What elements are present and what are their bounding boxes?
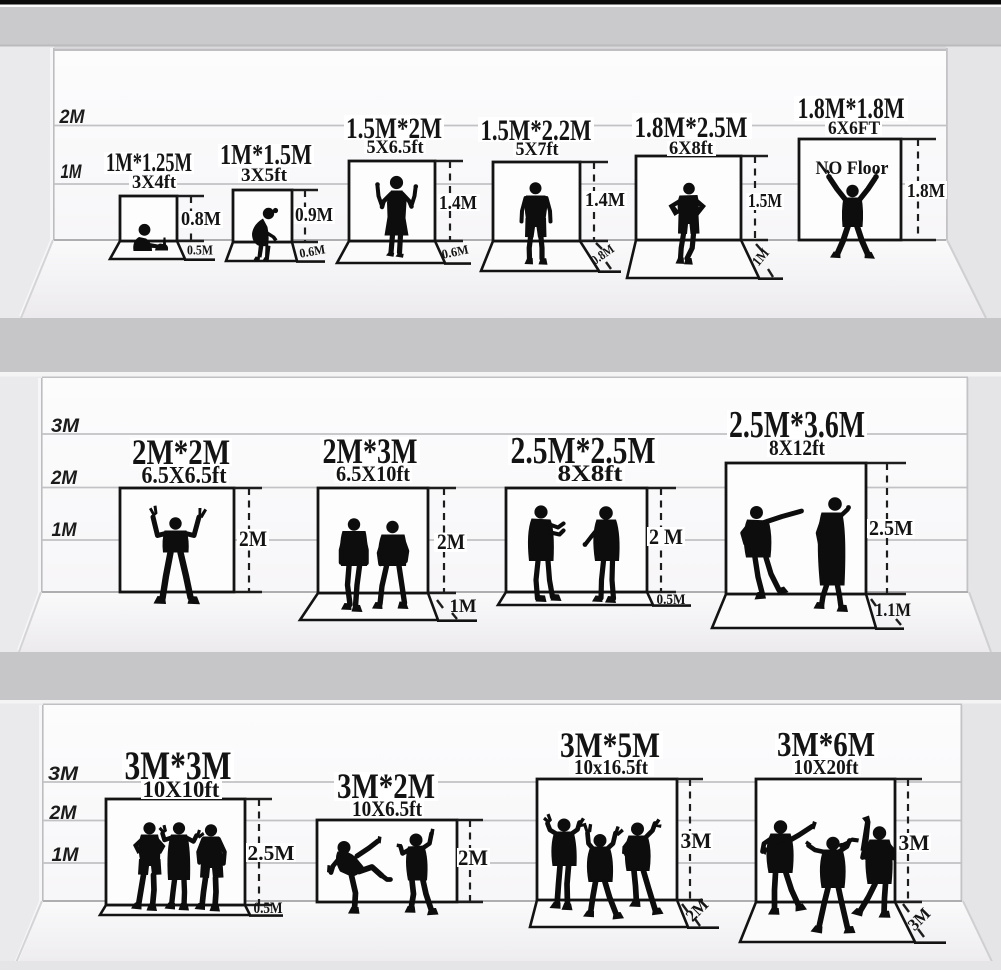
svg-text:10x16.5ft: 10x16.5ft (574, 755, 648, 779)
svg-text:1.1M: 1.1M (875, 600, 911, 621)
svg-text:6.5X6.5ft: 6.5X6.5ft (142, 463, 227, 489)
svg-text:1M: 1M (450, 596, 477, 617)
svg-text:1.5M: 1.5M (748, 190, 782, 212)
svg-text:10X6.5ft: 10X6.5ft (352, 796, 423, 821)
svg-text:6X6FT: 6X6FT (828, 118, 880, 139)
svg-text:6X8ft: 6X8ft (669, 138, 714, 159)
svg-text:3M: 3M (48, 764, 79, 785)
svg-text:1M: 1M (52, 520, 78, 541)
svg-text:2M: 2M (59, 107, 86, 128)
svg-text:5X6.5ft: 5X6.5ft (367, 137, 425, 158)
svg-text:0.5M: 0.5M (187, 244, 213, 259)
svg-text:2M: 2M (50, 468, 78, 489)
svg-text:1.8M: 1.8M (907, 180, 945, 202)
svg-text:1.4M: 1.4M (439, 192, 477, 214)
svg-text:2M: 2M (458, 845, 488, 870)
svg-text:2.5M: 2.5M (248, 841, 295, 865)
svg-text:3X4ft: 3X4ft (132, 172, 177, 193)
svg-text:6.5X10ft: 6.5X10ft (336, 461, 411, 486)
svg-text:1M: 1M (61, 162, 83, 183)
svg-text:5X7ft: 5X7ft (516, 139, 560, 160)
svg-text:8X8ft: 8X8ft (558, 461, 623, 486)
svg-text:2M: 2M (239, 526, 267, 551)
svg-text:2M: 2M (437, 529, 465, 554)
svg-text:0.5M: 0.5M (657, 592, 686, 608)
svg-text:8X12ft: 8X12ft (769, 435, 826, 460)
svg-text:3M: 3M (681, 828, 712, 853)
svg-text:2 M: 2 M (649, 524, 683, 549)
svg-text:1M: 1M (52, 845, 80, 866)
svg-text:10X20ft: 10X20ft (794, 755, 859, 779)
svg-text:3M: 3M (899, 830, 930, 855)
svg-text:3X5ft: 3X5ft (241, 165, 288, 186)
svg-text:0.9M: 0.9M (295, 204, 333, 226)
svg-text:10X10ft: 10X10ft (143, 777, 220, 802)
svg-text:2.5M: 2.5M (869, 516, 913, 540)
svg-text:0.8M: 0.8M (181, 208, 221, 230)
svg-text:0.5M: 0.5M (254, 900, 283, 917)
svg-text:1.4M: 1.4M (585, 189, 625, 211)
svg-text:2M: 2M (48, 803, 77, 824)
svg-text:3M: 3M (51, 416, 80, 437)
